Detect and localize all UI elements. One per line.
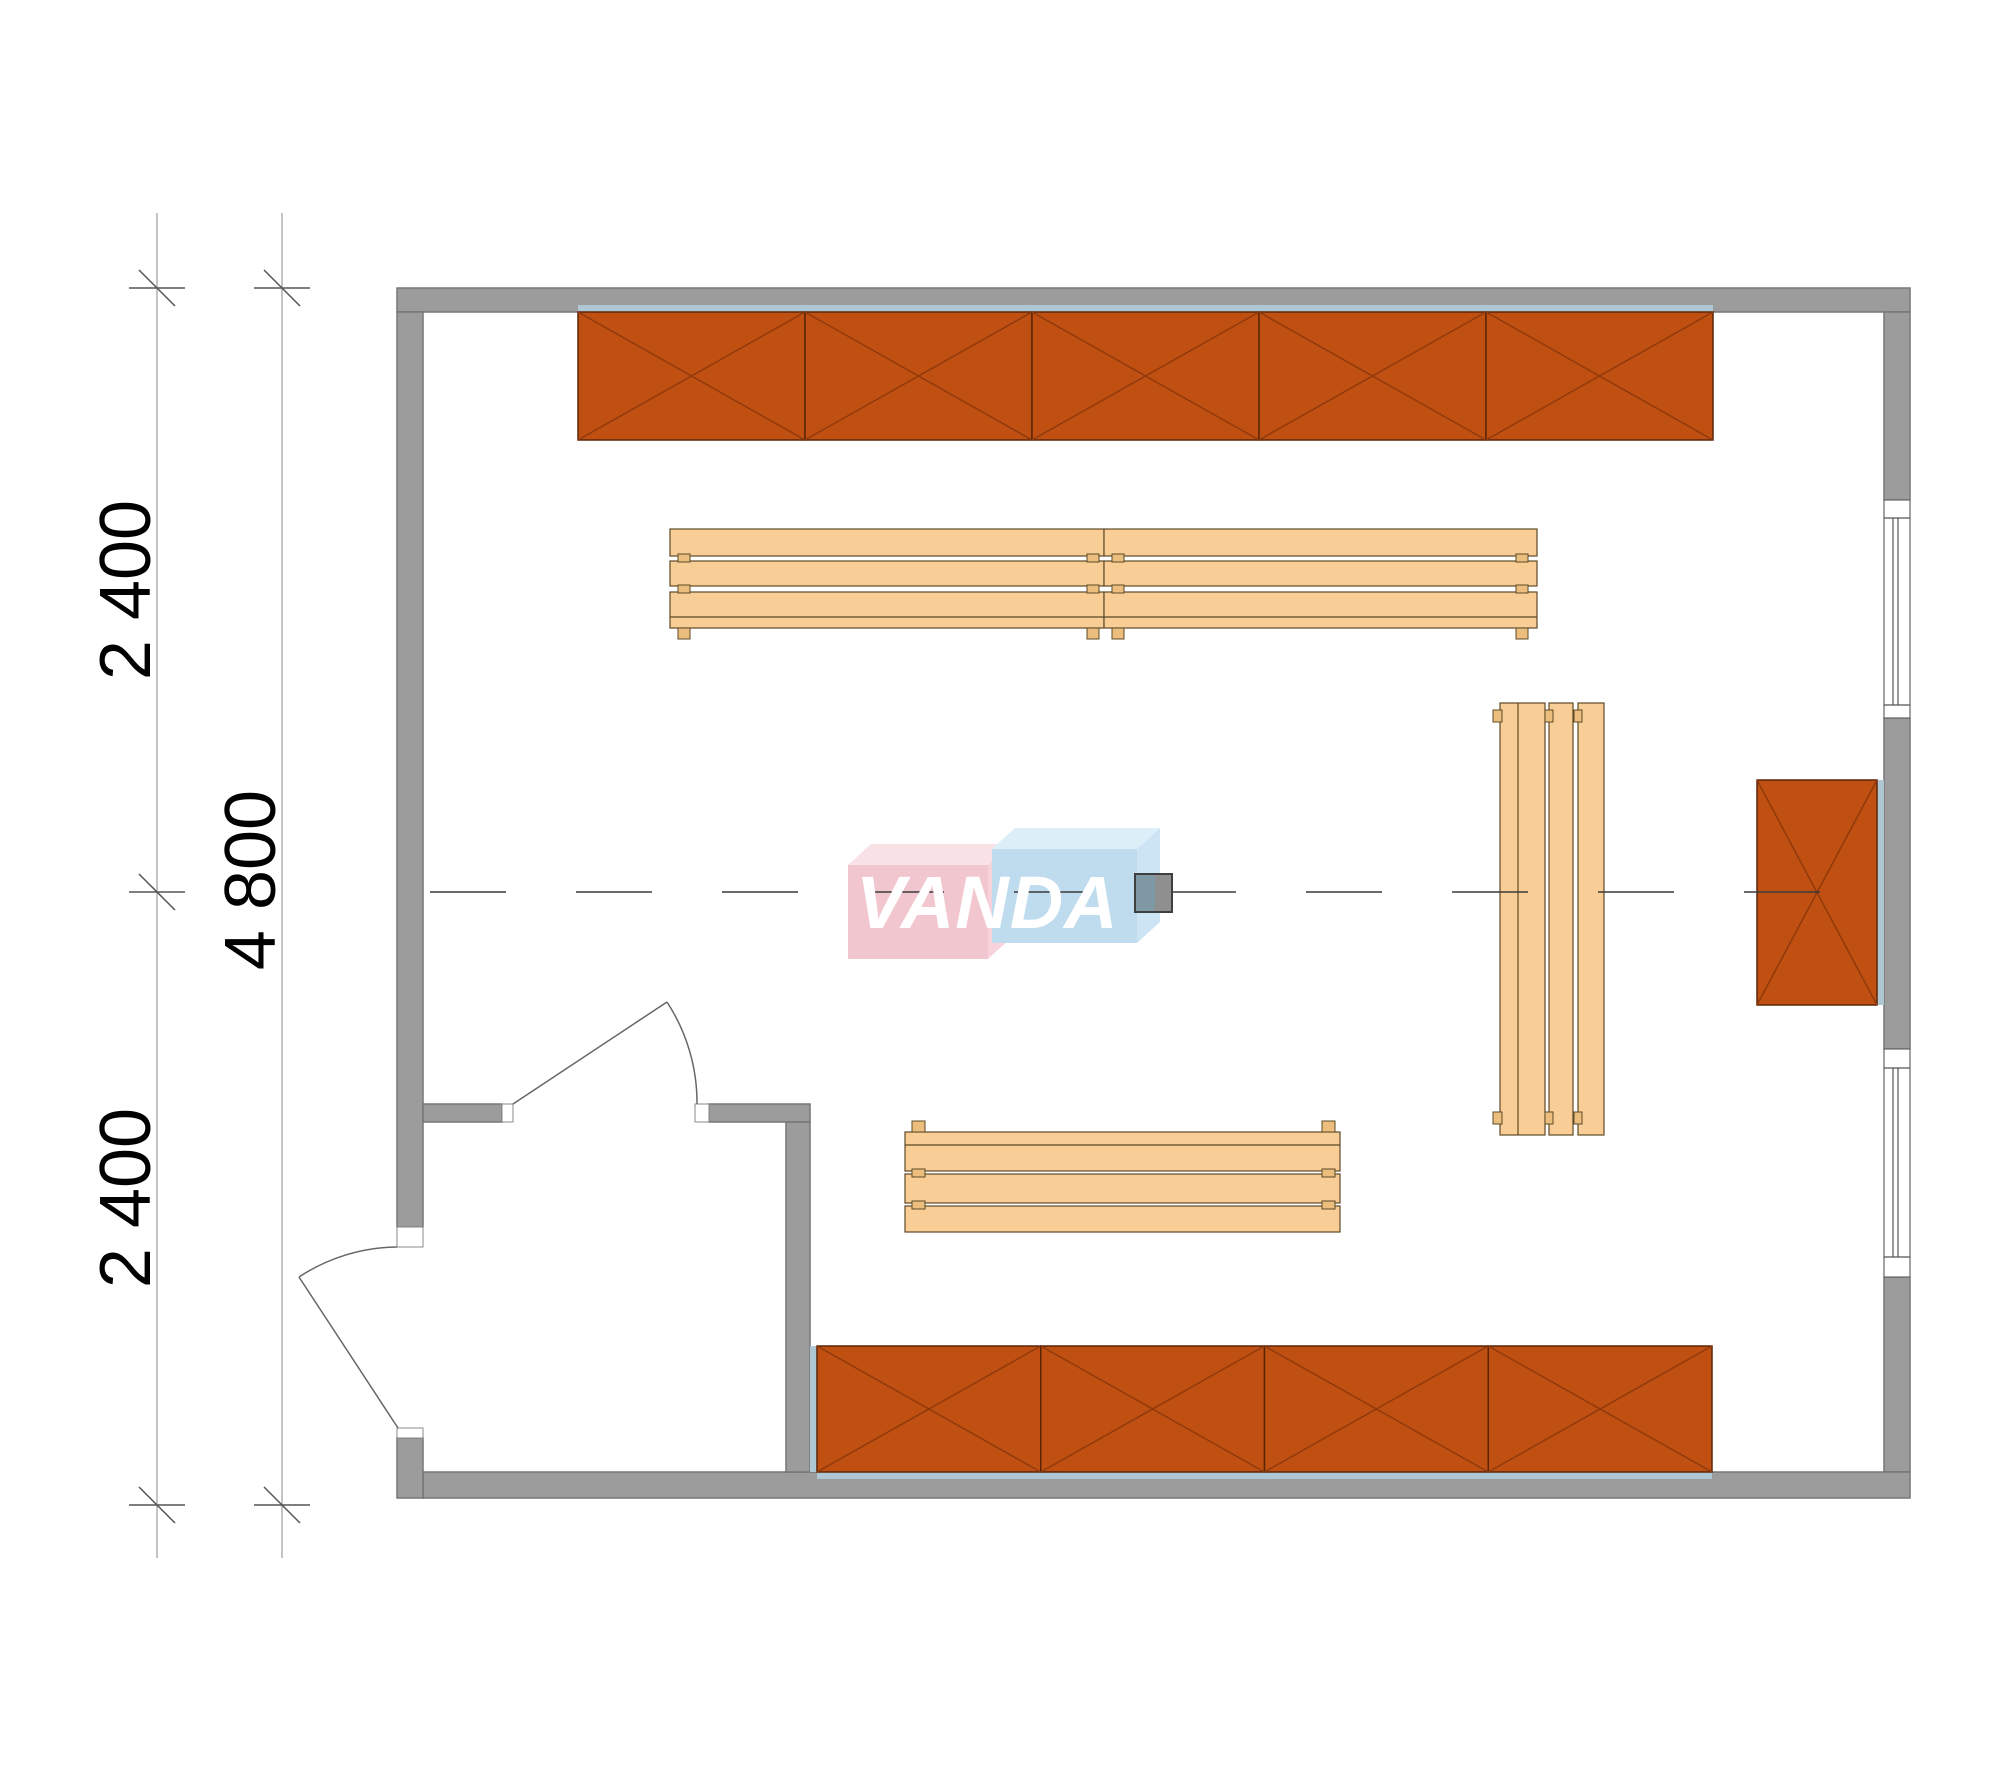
bench-leg [678, 585, 690, 593]
entry-door-swing-arc [299, 1247, 397, 1277]
bench-vertical-slat-2 [1549, 703, 1573, 1135]
jamb-interior-right [695, 1104, 709, 1122]
bench-leg [1574, 1112, 1582, 1124]
interior-door-swing-arc [667, 1002, 697, 1104]
bench-bottom-slat-1 [905, 1132, 1340, 1171]
bench-top-right-slat-2 [1104, 561, 1537, 586]
wall-left [397, 312, 423, 1227]
bench-leg [1112, 554, 1124, 562]
bench-leg [678, 554, 690, 562]
bench-leg [1087, 554, 1099, 562]
column-right-half [1155, 874, 1172, 912]
doors [299, 1002, 697, 1428]
bench-leg [1516, 628, 1528, 639]
wall-right-upper [1884, 312, 1910, 500]
bench-leg [912, 1201, 925, 1209]
wall-right-lower [1884, 1277, 1910, 1472]
dimension-label-total: 4 800 [211, 790, 291, 970]
bench-leg [1322, 1121, 1335, 1132]
bench-leg [1493, 710, 1502, 722]
bench-leg [678, 628, 690, 639]
center-column [1135, 874, 1172, 912]
bench-top-right-slat-1 [1104, 529, 1537, 556]
jamb-entry-top [397, 1227, 423, 1247]
bench-leg [1493, 1112, 1502, 1124]
bench-leg [1322, 1169, 1335, 1177]
bench-leg [1516, 554, 1528, 562]
bench-leg [1516, 585, 1528, 593]
floor-plan-canvas: 2 400 2 400 4 800 VANDA [0, 0, 2000, 1786]
backing-strip-right [1877, 780, 1884, 1005]
dimension-label-left-top: 2 400 [86, 500, 166, 680]
logo-blue-box-top [992, 828, 1160, 849]
jamb-interior-left [502, 1104, 513, 1122]
wall-right-middle [1884, 718, 1910, 1049]
wall-vestibule-left [423, 1104, 502, 1122]
window-lower [1884, 1049, 1910, 1277]
floor-plan: 2 400 2 400 4 800 VANDA [0, 0, 2000, 1786]
bench-bottom-slat-2 [905, 1174, 1340, 1203]
bench-bottom-slat-3 [905, 1206, 1340, 1232]
entry-door-leaf [299, 1277, 398, 1428]
bench-vertical-slat-1 [1500, 703, 1545, 1135]
door-jambs [397, 1104, 709, 1438]
bench-top-right-slat-3 [1104, 592, 1537, 628]
wall-vestibule-right [709, 1104, 810, 1122]
vanda-logo-text: VANDA [856, 861, 1119, 944]
wall-entry-stub [397, 1438, 423, 1498]
interior-door-leaf [513, 1002, 667, 1104]
column-left-half [1135, 874, 1155, 912]
bench-leg [1112, 628, 1124, 639]
jamb-entry-bottom [397, 1428, 423, 1438]
bench-top-left-slat-1 [670, 529, 1104, 556]
bench-leg [1087, 628, 1099, 639]
wall-vestibule-vertical [786, 1122, 810, 1472]
bench-leg [1574, 710, 1582, 722]
dimension-label-left-bottom: 2 400 [86, 1108, 166, 1288]
bench-leg [912, 1169, 925, 1177]
bench-leg [912, 1121, 925, 1132]
bench-leg [1112, 585, 1124, 593]
bench-top-left-slat-3 [670, 592, 1104, 628]
bench-top-left-slat-2 [670, 561, 1104, 586]
bench-leg [1322, 1201, 1335, 1209]
backing-strip-bottom [817, 1472, 1712, 1479]
bench-leg [1545, 1112, 1553, 1124]
bench-leg [1087, 585, 1099, 593]
bench-vertical-slat-3 [1578, 703, 1604, 1135]
window-upper [1884, 500, 1910, 718]
backing-strip-bottom-left [810, 1346, 817, 1472]
bench-leg [1545, 710, 1553, 722]
